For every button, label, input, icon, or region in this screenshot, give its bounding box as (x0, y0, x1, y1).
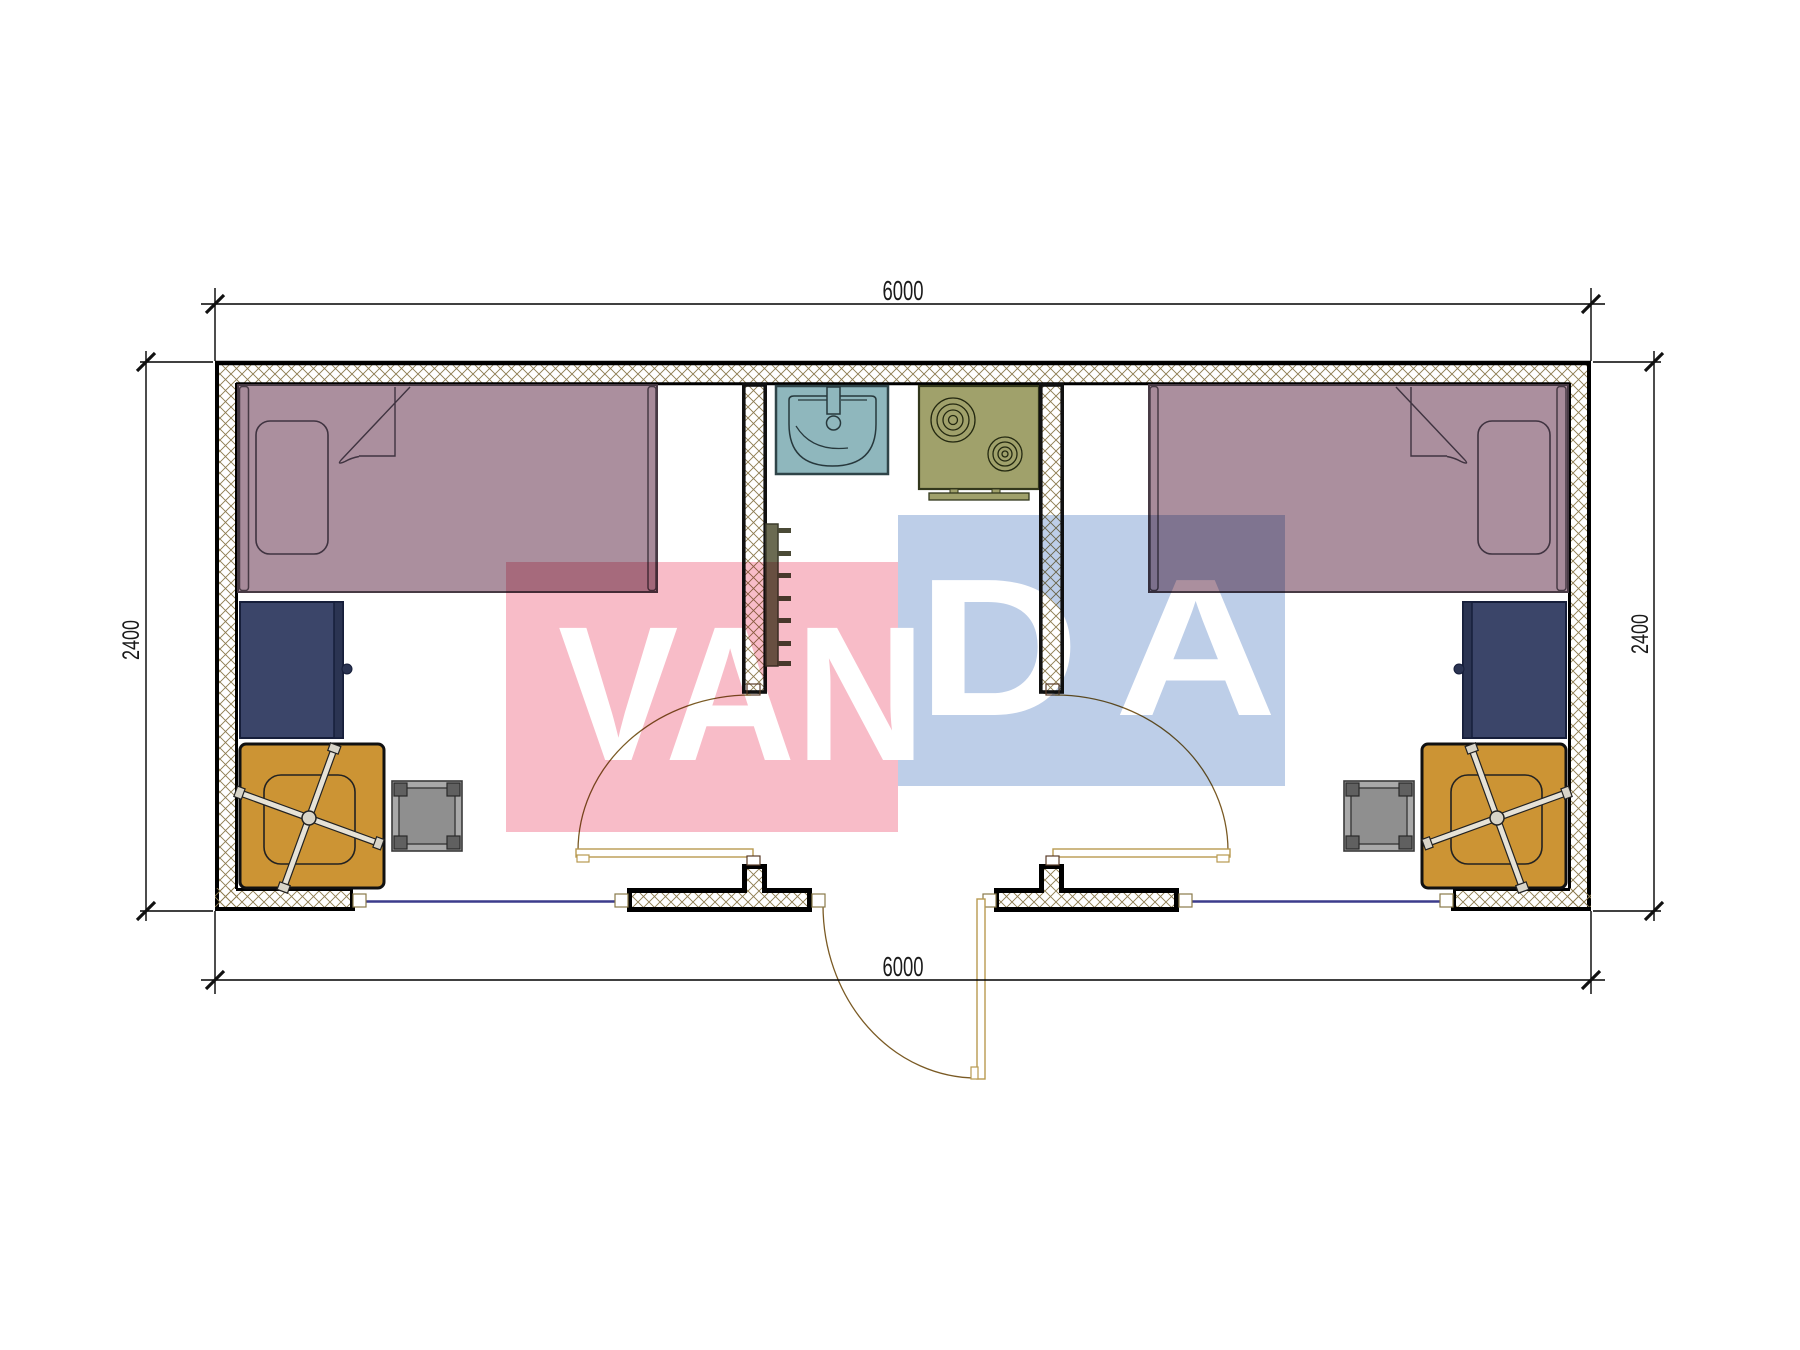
svg-text:6000: 6000 (882, 952, 923, 983)
svg-text:2400: 2400 (119, 620, 145, 660)
svg-text:6000: 6000 (882, 276, 923, 307)
svg-text:2400: 2400 (1628, 614, 1654, 654)
